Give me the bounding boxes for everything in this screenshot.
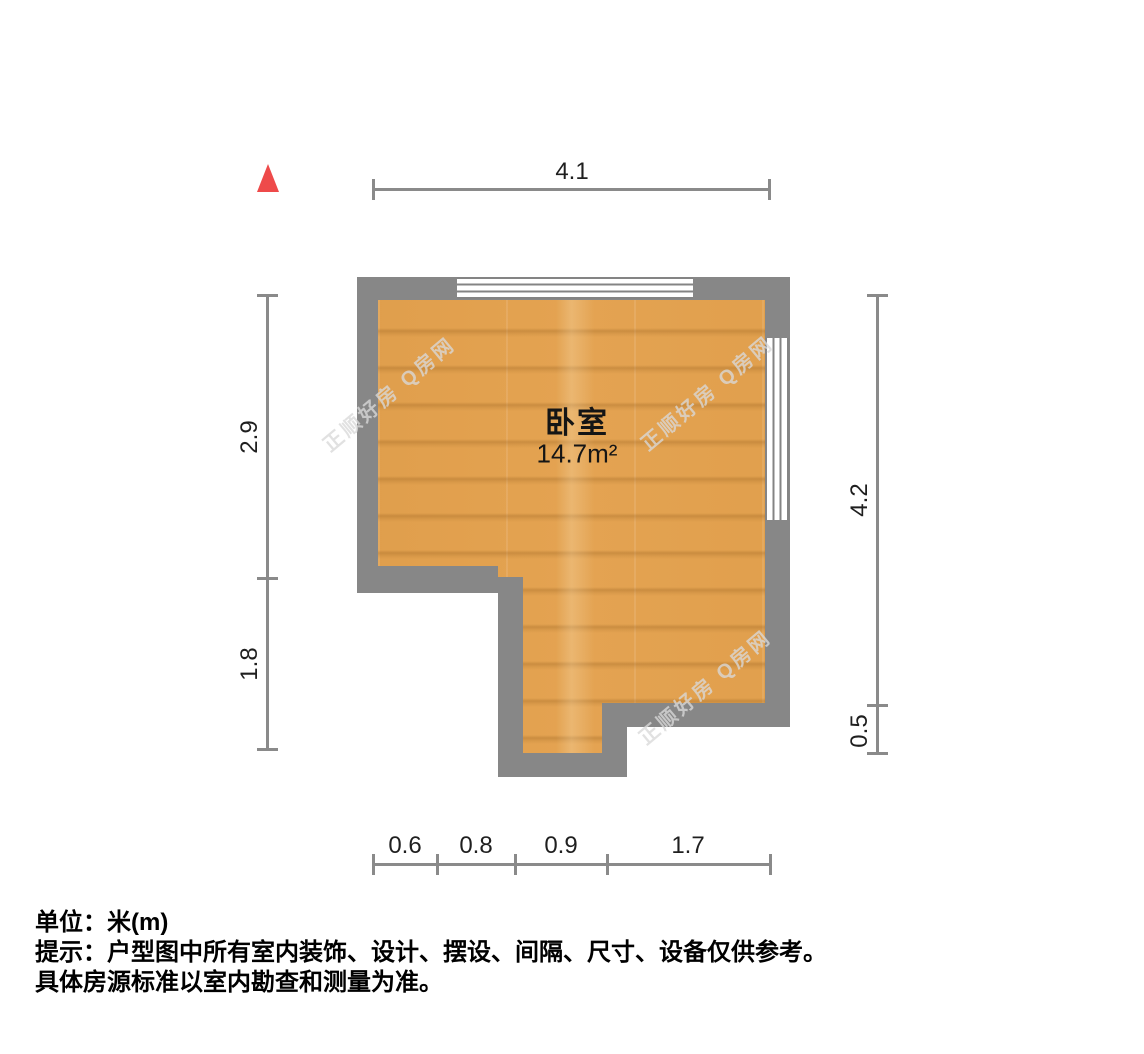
dimension-label-left-2-9: 2.9 xyxy=(236,420,264,453)
dimension-line-right xyxy=(876,295,879,754)
wall-bottom xyxy=(498,753,627,777)
dimension-label-bottom-1-7: 1.7 xyxy=(671,832,704,860)
dimension-label-bottom-0-9: 0.9 xyxy=(544,832,577,860)
dimension-label-left-1-8: 1.8 xyxy=(236,647,264,680)
dimension-tick xyxy=(436,854,439,875)
dimension-label-bottom-0-6: 0.6 xyxy=(388,832,421,860)
dimension-tick xyxy=(257,577,278,580)
dimension-tick xyxy=(257,748,278,751)
dimension-tick xyxy=(372,179,375,200)
window-top xyxy=(457,277,693,299)
wall-lower-left xyxy=(357,566,498,593)
dimension-tick xyxy=(769,854,772,875)
north-arrow-icon xyxy=(257,164,279,192)
dimension-label-right-0-5: 0.5 xyxy=(846,714,874,747)
dimension-label-bottom-0-8: 0.8 xyxy=(459,832,492,860)
floor-plan-canvas: 4.1 2.9 1.8 4.2 0.5 0.6 0.8 0.9 1.7 卧室 1… xyxy=(0,0,1144,1054)
notes-block: 单位：米(m) 提示：户型图中所有室内装饰、设计、摆设、间隔、尺寸、设备仅供参考… xyxy=(35,908,827,998)
dimension-line-left xyxy=(266,295,269,750)
dimension-tick xyxy=(606,854,609,875)
dimension-tick xyxy=(867,752,888,755)
dimension-label-right-4-2: 4.2 xyxy=(846,483,874,516)
dimension-tick xyxy=(867,294,888,297)
note-tip-line2: 具体房源标准以室内勘查和测量为准。 xyxy=(35,968,827,998)
room-area-label: 14.7m² xyxy=(537,439,618,470)
dimension-tick xyxy=(257,294,278,297)
dimension-tick xyxy=(867,704,888,707)
room-name-label: 卧室 xyxy=(545,398,609,442)
window-right xyxy=(765,338,789,520)
wall-inner-vertical xyxy=(498,577,523,777)
dimension-tick xyxy=(514,854,517,875)
dimension-line-top xyxy=(373,188,770,191)
note-unit-line: 单位：米(m) xyxy=(35,908,827,938)
dimension-line-bottom xyxy=(373,863,772,866)
dimension-tick xyxy=(372,854,375,875)
dimension-tick xyxy=(768,179,771,200)
note-tip-line1: 提示：户型图中所有室内装饰、设计、摆设、间隔、尺寸、设备仅供参考。 xyxy=(35,938,827,968)
dimension-label-top-4-1: 4.1 xyxy=(555,158,588,186)
